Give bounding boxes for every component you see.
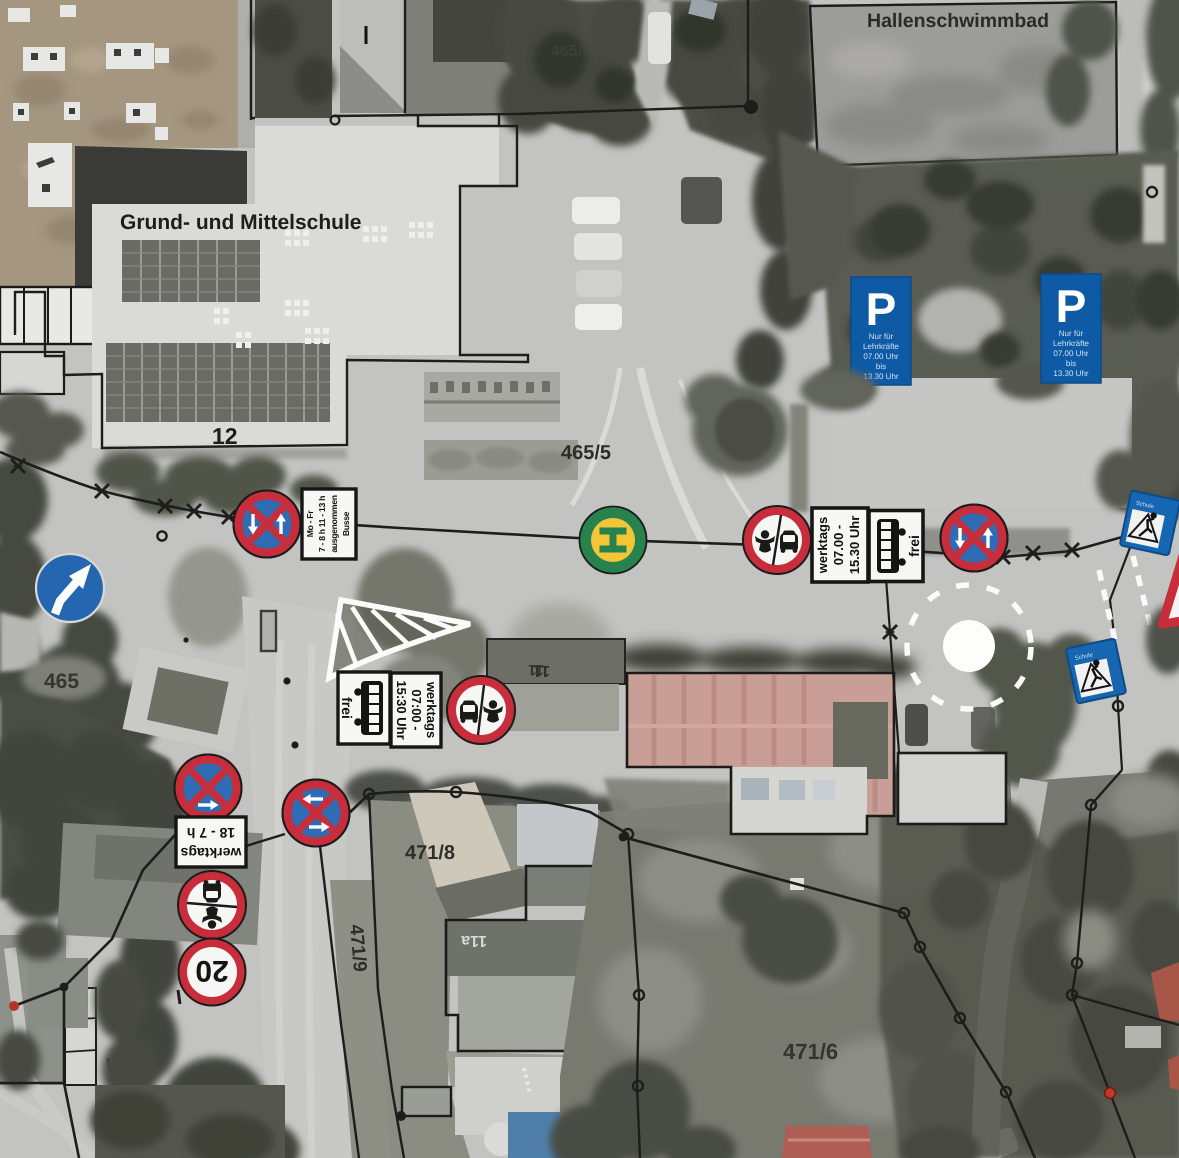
svg-text:07.00 -: 07.00 -	[831, 525, 846, 565]
svg-text:Nur für: Nur für	[1059, 329, 1084, 338]
svg-text:13.30 Uhr: 13.30 Uhr	[1053, 369, 1088, 378]
svg-text:11a: 11a	[461, 932, 487, 949]
svg-text:ausgenommen: ausgenommen	[329, 495, 339, 552]
svg-text:471/6: 471/6	[783, 1039, 838, 1064]
svg-text:20: 20	[195, 954, 228, 987]
svg-text:bis: bis	[876, 362, 886, 371]
svg-text:bis: bis	[1066, 359, 1076, 368]
svg-text:15:30 Uhr: 15:30 Uhr	[394, 680, 409, 739]
svg-text:07.00 Uhr: 07.00 Uhr	[1053, 349, 1088, 358]
svg-text:471/8: 471/8	[405, 842, 455, 864]
svg-text:P: P	[1056, 280, 1087, 332]
svg-text:Grund- und Mittelschule: Grund- und Mittelschule	[120, 211, 362, 234]
svg-text:465/5: 465/5	[561, 442, 611, 464]
svg-text:07.00 Uhr: 07.00 Uhr	[863, 352, 898, 361]
svg-text:465/6: 465/6	[551, 43, 591, 60]
svg-text:P: P	[866, 283, 897, 335]
svg-text:471/9: 471/9	[345, 924, 370, 973]
svg-text:Nur für: Nur für	[869, 332, 894, 341]
svg-text:Lehrkräfte: Lehrkräfte	[863, 342, 900, 351]
svg-text:Busse: Busse	[341, 511, 351, 536]
svg-text:7 - 8 h 11 - 13 h: 7 - 8 h 11 - 13 h	[317, 496, 327, 552]
svg-text:11: 11	[528, 661, 544, 678]
svg-text:werktags: werktags	[180, 845, 242, 861]
svg-text:werktags: werktags	[815, 517, 830, 574]
svg-text:frei: frei	[339, 697, 355, 719]
svg-text:07:00 -: 07:00 -	[409, 689, 424, 730]
svg-text:Mo - Fr: Mo - Fr	[305, 510, 315, 537]
svg-text:12: 12	[212, 423, 238, 449]
svg-text:465: 465	[44, 670, 79, 693]
svg-text:Lehrkräfte: Lehrkräfte	[1053, 339, 1090, 348]
svg-text:18 - 7 h: 18 - 7 h	[187, 825, 235, 841]
svg-text:frei: frei	[906, 535, 922, 557]
svg-text:15.30 Uhr: 15.30 Uhr	[847, 516, 862, 575]
svg-text:werktags: werktags	[424, 681, 439, 738]
svg-text:Hallenschwimmbad: Hallenschwimmbad	[867, 10, 1049, 32]
